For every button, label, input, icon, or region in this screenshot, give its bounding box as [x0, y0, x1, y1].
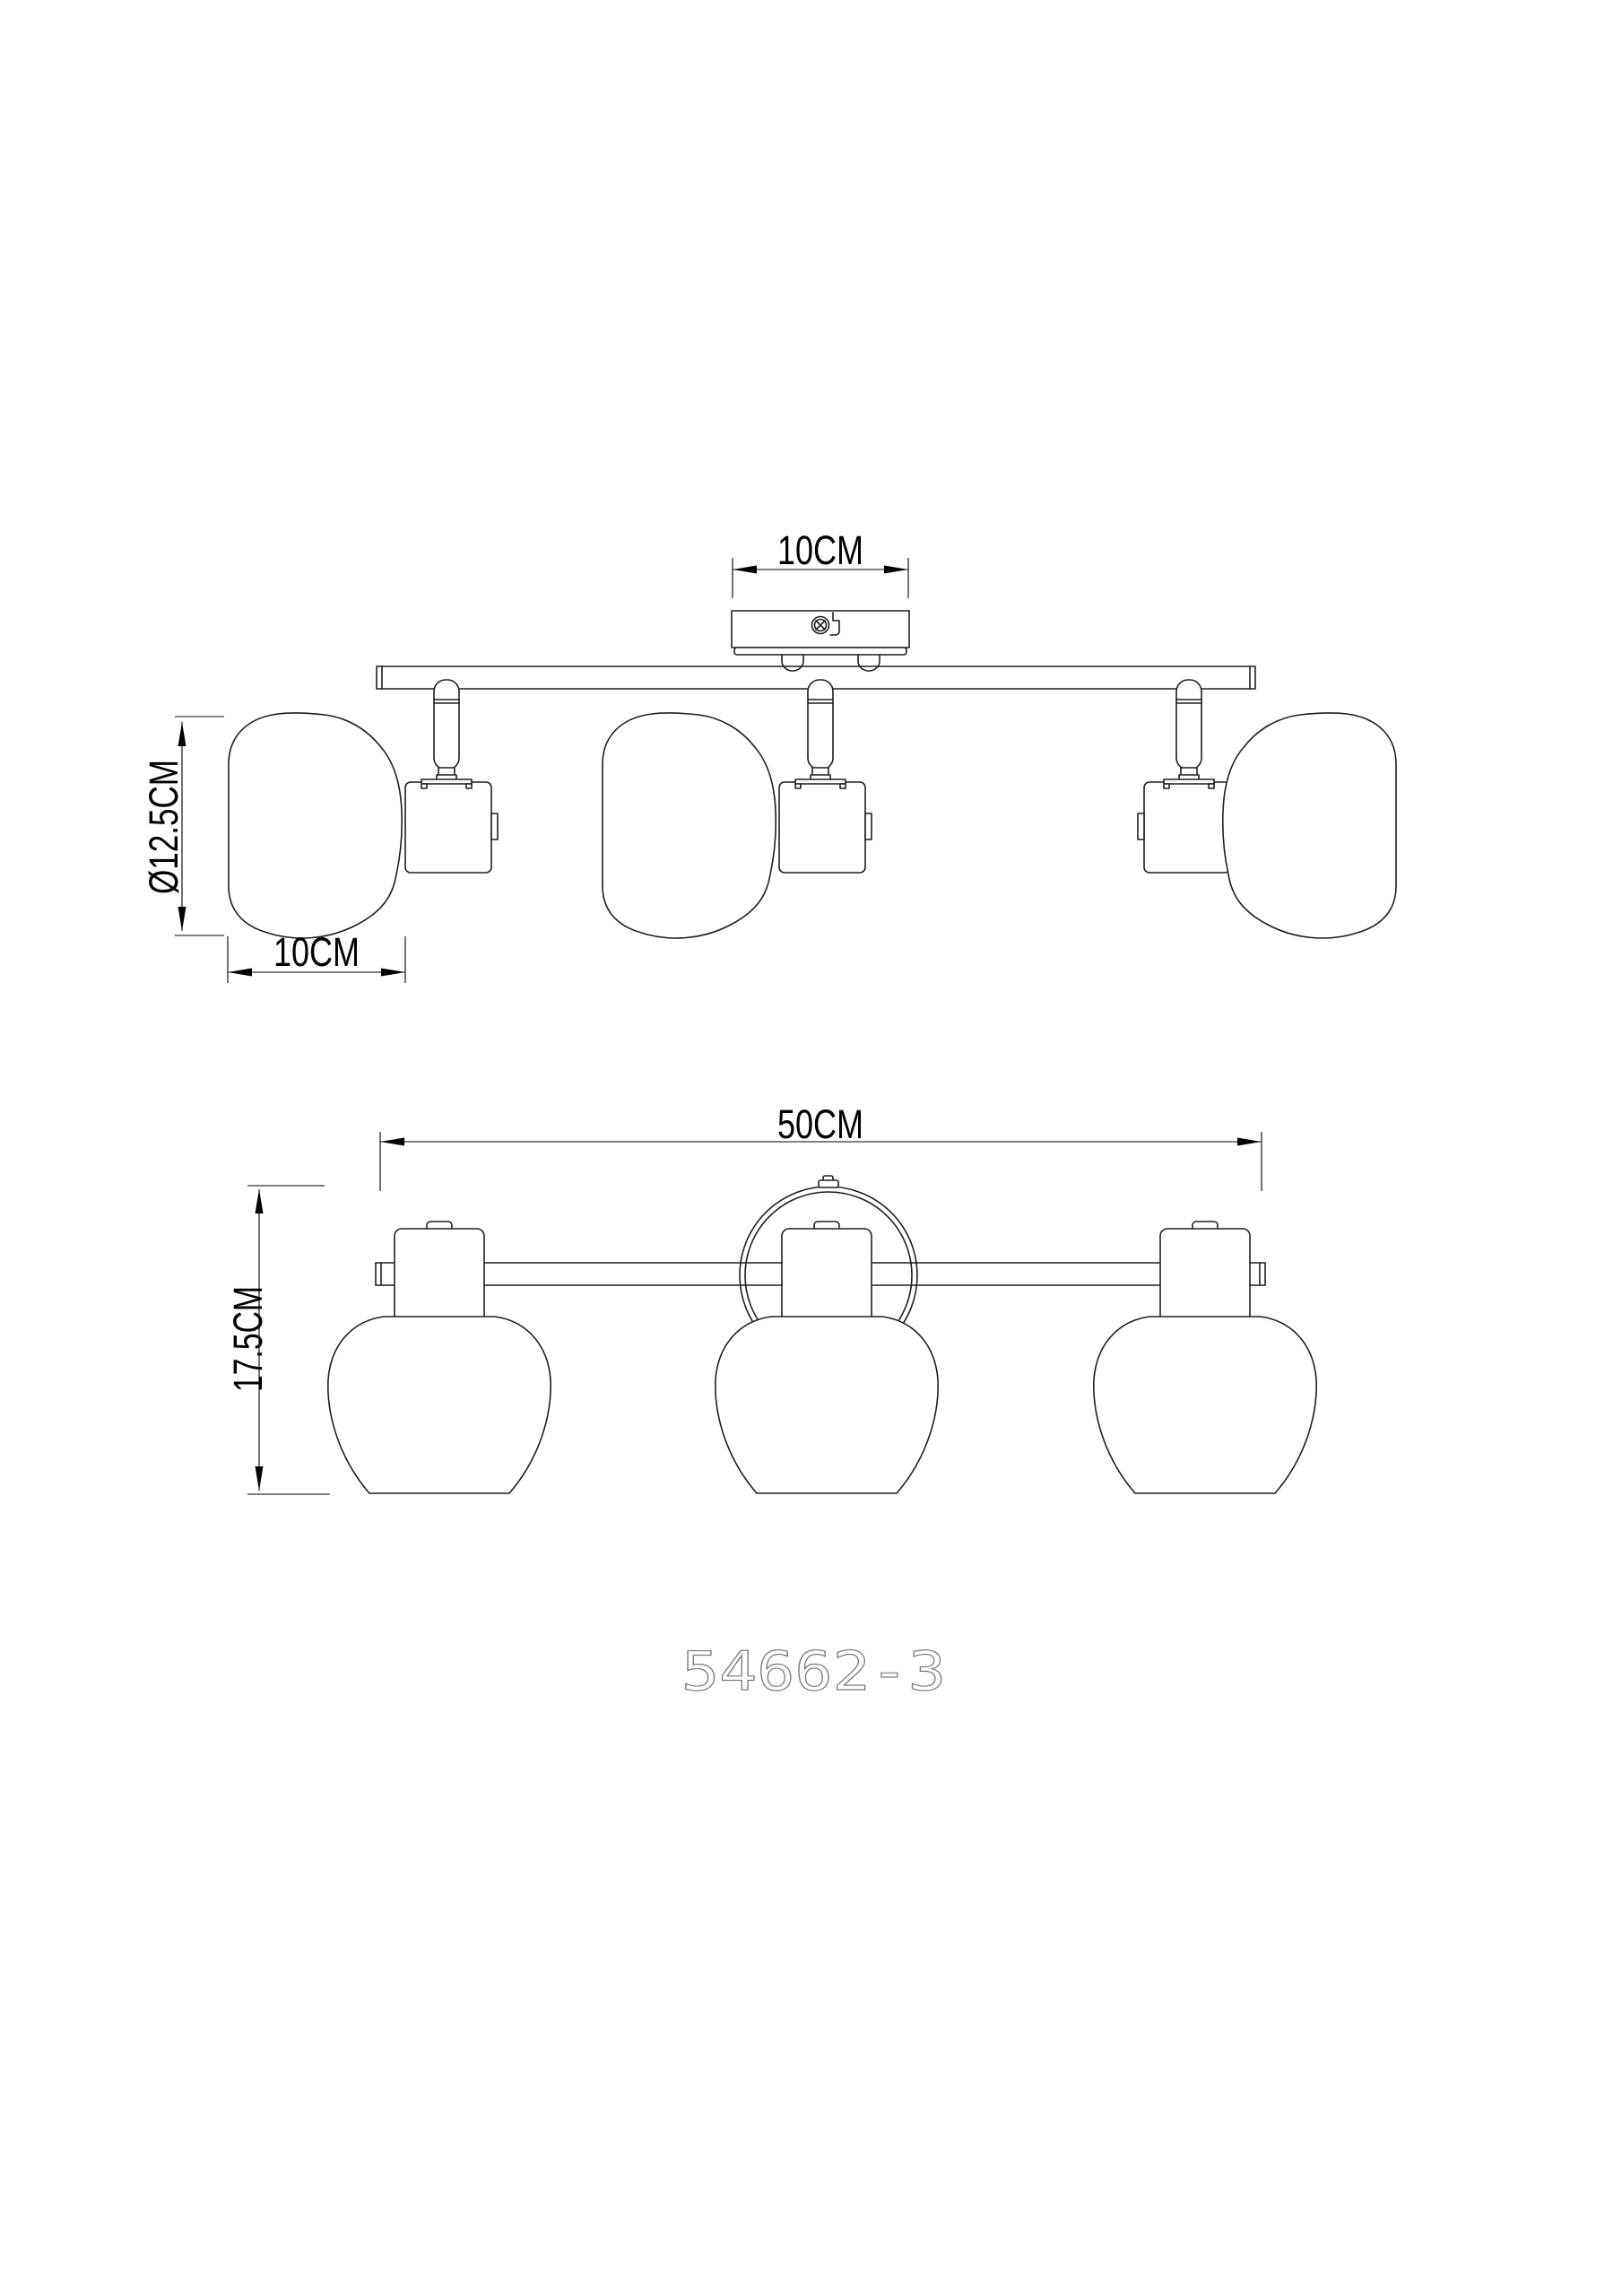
dim-label-total-width: 50CM [777, 1101, 863, 1147]
dim-height: 17.5CM [225, 1186, 330, 1494]
top-lamp-right [1138, 680, 1230, 873]
front-stem-right [1160, 1222, 1250, 1323]
front-shade-right [1094, 1317, 1316, 1493]
top-shade-left [229, 713, 402, 938]
part-number: 54662-3 [681, 1640, 946, 1703]
stem-flange [795, 779, 846, 784]
stem-flange [1164, 779, 1214, 784]
top-shade-right [1223, 713, 1396, 938]
lamp-holder [1144, 782, 1230, 873]
lamp-holder [405, 782, 491, 873]
plate-screw-icon [812, 617, 829, 634]
dim-label-height: 17.5CM [225, 1286, 271, 1392]
dim-shade-width: 10CM [228, 929, 405, 983]
dim-total-width: 50CM [380, 1101, 1262, 1191]
front-stem-left [395, 1222, 484, 1323]
mounting-plate [732, 611, 909, 671]
lamp-holder [779, 782, 865, 873]
stem-flange [421, 779, 472, 784]
front-shade-center [716, 1317, 938, 1493]
front-shade-left [328, 1317, 551, 1493]
dim-label-plate-width: 10CM [777, 527, 863, 573]
top-lamp-left [405, 680, 498, 873]
technical-drawing-canvas: 10CM Ø12.5CM 10CM [0, 0, 1622, 2296]
dim-label-shade-width: 10CM [273, 929, 360, 975]
drawing-page: 10CM Ø12.5CM 10CM [0, 0, 1622, 2296]
holder-switch-tab [1138, 813, 1144, 839]
dim-label-shade-diameter: Ø12.5CM [141, 760, 186, 894]
front-stem-center [782, 1222, 872, 1323]
top-shade-center [603, 713, 776, 938]
dim-shade-diameter: Ø12.5CM [141, 717, 224, 935]
top-view: 10CM Ø12.5CM 10CM [141, 527, 1396, 983]
top-lamp-center [779, 680, 872, 873]
dim-plate-width: 10CM [733, 527, 908, 598]
holder-switch-tab [491, 813, 498, 839]
holder-switch-tab [865, 813, 872, 839]
canopy-screw-icon [819, 1176, 838, 1187]
front-view: 50CM 17.5CM [225, 1101, 1316, 1494]
